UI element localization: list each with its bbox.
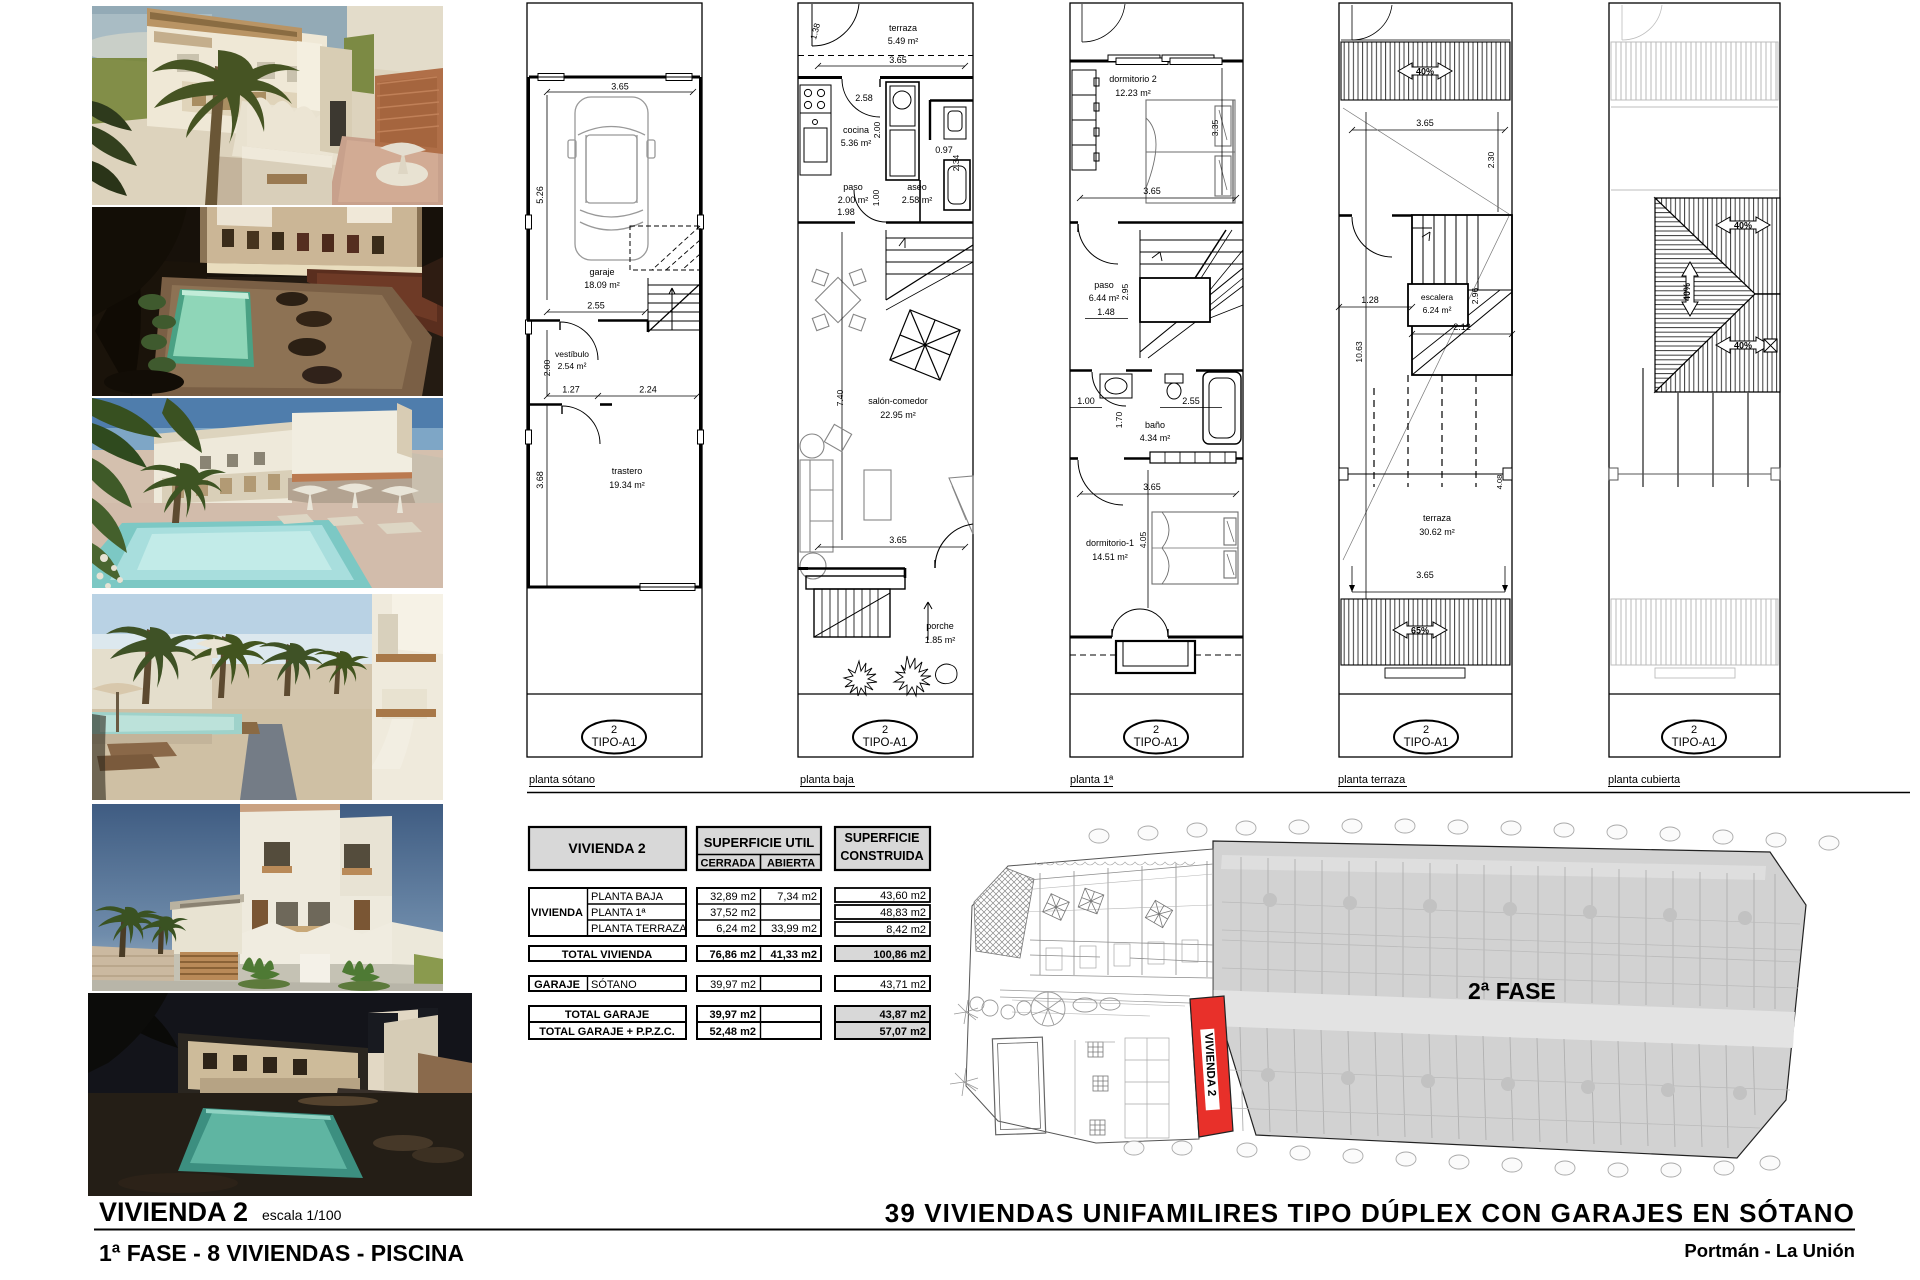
svg-text:Portmán - La Unión: Portmán - La Unión [1684, 1240, 1855, 1261]
svg-text:TIPO-A1: TIPO-A1 [1134, 737, 1179, 749]
svg-text:VIVIENDA 2: VIVIENDA 2 [99, 1197, 248, 1227]
svg-text:garaje: garaje [589, 267, 614, 277]
svg-text:2.96: 2.96 [1470, 287, 1480, 304]
svg-text:8,42 m2: 8,42 m2 [886, 924, 926, 936]
svg-text:1.00: 1.00 [1077, 396, 1095, 406]
svg-text:40%: 40% [1682, 283, 1692, 301]
svg-text:dormitorio-1: dormitorio-1 [1086, 538, 1134, 548]
svg-text:terraza: terraza [889, 23, 917, 33]
svg-text:SÓTANO: SÓTANO [591, 978, 637, 991]
svg-text:32,89 m2: 32,89 m2 [710, 891, 756, 903]
svg-text:1.28: 1.28 [1361, 295, 1379, 305]
svg-text:planta cubierta: planta cubierta [1608, 774, 1681, 786]
svg-text:2.30: 2.30 [1486, 151, 1496, 168]
svg-text:CERRADA: CERRADA [701, 858, 756, 870]
svg-text:41,33 m2: 41,33 m2 [771, 949, 817, 961]
svg-text:30.62 m²: 30.62 m² [1419, 527, 1455, 537]
svg-text:planta sótano: planta sótano [529, 774, 595, 786]
svg-text:43,87 m2: 43,87 m2 [880, 1009, 926, 1021]
svg-text:76,86 m2: 76,86 m2 [710, 949, 756, 961]
svg-text:100,86 m2: 100,86 m2 [873, 949, 926, 961]
svg-text:2: 2 [1153, 724, 1159, 736]
svg-text:2.54 m²: 2.54 m² [558, 361, 587, 371]
svg-text:dormitorio 2: dormitorio 2 [1109, 74, 1157, 84]
svg-text:salón-comedor: salón-comedor [868, 396, 928, 406]
svg-text:7.40: 7.40 [835, 389, 845, 406]
svg-text:aseo: aseo [907, 182, 927, 192]
svg-text:40%: 40% [1734, 341, 1752, 351]
svg-text:PLANTA 1ª: PLANTA 1ª [591, 907, 647, 919]
svg-text:planta terraza: planta terraza [1338, 774, 1406, 786]
svg-text:65%: 65% [1411, 626, 1429, 636]
svg-text:TOTAL VIVIENDA: TOTAL VIVIENDA [562, 949, 653, 961]
svg-text:TIPO-A1: TIPO-A1 [863, 737, 908, 749]
svg-text:0.97: 0.97 [935, 145, 953, 155]
svg-text:1.98: 1.98 [837, 207, 855, 217]
svg-text:SUPERFICIE: SUPERFICIE [844, 831, 919, 845]
svg-text:paso: paso [1094, 280, 1114, 290]
svg-text:2.12: 2.12 [1453, 322, 1471, 332]
svg-text:2: 2 [882, 724, 888, 736]
svg-text:cocina: cocina [843, 125, 869, 135]
svg-text:19.34 m²: 19.34 m² [609, 480, 645, 490]
svg-text:37,52 m2: 37,52 m2 [710, 907, 756, 919]
svg-text:5.49 m²: 5.49 m² [888, 36, 919, 46]
svg-text:39,97 m2: 39,97 m2 [710, 1009, 756, 1021]
svg-text:22.95 m²: 22.95 m² [880, 410, 916, 420]
svg-text:1ª FASE - 8 VIVIENDAS - PISCIN: 1ª FASE - 8 VIVIENDAS - PISCINA [99, 1240, 464, 1266]
svg-text:VIVIENDA: VIVIENDA [531, 907, 583, 919]
svg-text:TIPO-A1: TIPO-A1 [592, 737, 637, 749]
svg-text:2.95: 2.95 [1120, 283, 1130, 300]
svg-text:3.65: 3.65 [889, 535, 907, 545]
svg-text:3.35: 3.35 [1210, 119, 1220, 136]
svg-text:escala 1/100: escala 1/100 [262, 1207, 342, 1223]
svg-text:2.24: 2.24 [639, 385, 657, 395]
svg-text:10.63: 10.63 [1354, 341, 1364, 363]
svg-text:porche: porche [926, 621, 954, 631]
svg-text:48,83 m2: 48,83 m2 [880, 907, 926, 919]
svg-text:escalera: escalera [1421, 292, 1453, 302]
svg-text:VIVIENDA 2: VIVIENDA 2 [568, 840, 645, 856]
svg-text:2.34: 2.34 [951, 154, 961, 171]
svg-text:18.09 m²: 18.09 m² [584, 280, 620, 290]
svg-text:planta baja: planta baja [800, 774, 855, 786]
svg-text:terraza: terraza [1423, 513, 1451, 523]
svg-text:2.58: 2.58 [855, 93, 873, 103]
svg-text:2.55: 2.55 [587, 301, 605, 311]
svg-text:1.27: 1.27 [562, 385, 580, 395]
svg-text:baño: baño [1145, 420, 1165, 430]
svg-text:TIPO-A1: TIPO-A1 [1404, 737, 1449, 749]
svg-text:SUPERFICIE UTIL: SUPERFICIE UTIL [704, 835, 815, 850]
svg-text:3.65: 3.65 [1143, 186, 1161, 196]
svg-text:TOTAL GARAJE + P.P.Z.C.: TOTAL GARAJE + P.P.Z.C. [539, 1026, 675, 1038]
svg-text:2ª FASE: 2ª FASE [1468, 978, 1556, 1004]
svg-text:4.34 m²: 4.34 m² [1140, 433, 1171, 443]
svg-text:39 VIVIENDAS UNIFAMILIRES TIPO: 39 VIVIENDAS UNIFAMILIRES TIPO DÚPLEX CO… [885, 1198, 1855, 1228]
svg-text:CONSTRUIDA: CONSTRUIDA [840, 849, 923, 863]
svg-text:2: 2 [1423, 724, 1429, 736]
svg-text:3.65: 3.65 [1416, 118, 1434, 128]
svg-text:paso: paso [843, 182, 863, 192]
svg-text:2.58 m²: 2.58 m² [902, 195, 933, 205]
svg-text:1.48: 1.48 [1097, 307, 1115, 317]
svg-text:52,48 m2: 52,48 m2 [710, 1026, 756, 1038]
svg-text:1.85 m²: 1.85 m² [925, 635, 956, 645]
svg-text:1.38: 1.38 [808, 22, 822, 41]
svg-text:12.23 m²: 12.23 m² [1115, 88, 1151, 98]
svg-text:1.00: 1.00 [871, 189, 881, 206]
svg-text:43,60 m2: 43,60 m2 [880, 890, 926, 902]
svg-text:5.26: 5.26 [535, 186, 545, 204]
svg-text:7,34 m2: 7,34 m2 [777, 891, 817, 903]
svg-text:33,99 m2: 33,99 m2 [771, 923, 817, 935]
svg-text:planta 1ª: planta 1ª [1070, 774, 1114, 786]
svg-text:TIPO-A1: TIPO-A1 [1672, 737, 1717, 749]
svg-text:43,71 m2: 43,71 m2 [880, 979, 926, 991]
svg-text:3.65: 3.65 [889, 55, 907, 65]
svg-text:14.51 m²: 14.51 m² [1092, 552, 1128, 562]
svg-text:6.44 m²: 6.44 m² [1089, 293, 1120, 303]
svg-text:3.65: 3.65 [611, 82, 629, 92]
svg-text:TOTAL GARAJE: TOTAL GARAJE [565, 1009, 649, 1021]
svg-text:5.36 m²: 5.36 m² [841, 138, 872, 148]
svg-text:4.08: 4.08 [1495, 475, 1504, 490]
svg-text:2.00: 2.00 [872, 121, 882, 138]
svg-text:2.55: 2.55 [1182, 396, 1200, 406]
svg-text:vestíbulo: vestíbulo [555, 349, 589, 359]
svg-text:2.00: 2.00 [542, 359, 552, 376]
svg-text:40%: 40% [1416, 67, 1434, 77]
svg-text:trastero: trastero [612, 466, 643, 476]
svg-text:2: 2 [611, 724, 617, 736]
svg-text:PLANTA TERRAZA: PLANTA TERRAZA [591, 923, 687, 935]
svg-text:GARAJE: GARAJE [534, 979, 580, 991]
svg-text:57,07 m2: 57,07 m2 [880, 1026, 926, 1038]
svg-text:PLANTA BAJA: PLANTA BAJA [591, 891, 664, 903]
svg-text:3.68: 3.68 [535, 471, 545, 489]
svg-text:3.65: 3.65 [1143, 482, 1161, 492]
svg-text:3.65: 3.65 [1416, 570, 1434, 580]
svg-text:4.05: 4.05 [1138, 531, 1148, 548]
svg-text:1.70: 1.70 [1114, 411, 1124, 428]
svg-text:6,24 m2: 6,24 m2 [716, 923, 756, 935]
svg-text:2: 2 [1691, 724, 1697, 736]
svg-text:40%: 40% [1734, 221, 1752, 231]
svg-text:39,97 m2: 39,97 m2 [710, 979, 756, 991]
svg-text:2.00 m²: 2.00 m² [838, 195, 869, 205]
svg-text:6.24 m²: 6.24 m² [1423, 305, 1452, 315]
svg-text:ABIERTA: ABIERTA [767, 858, 815, 870]
